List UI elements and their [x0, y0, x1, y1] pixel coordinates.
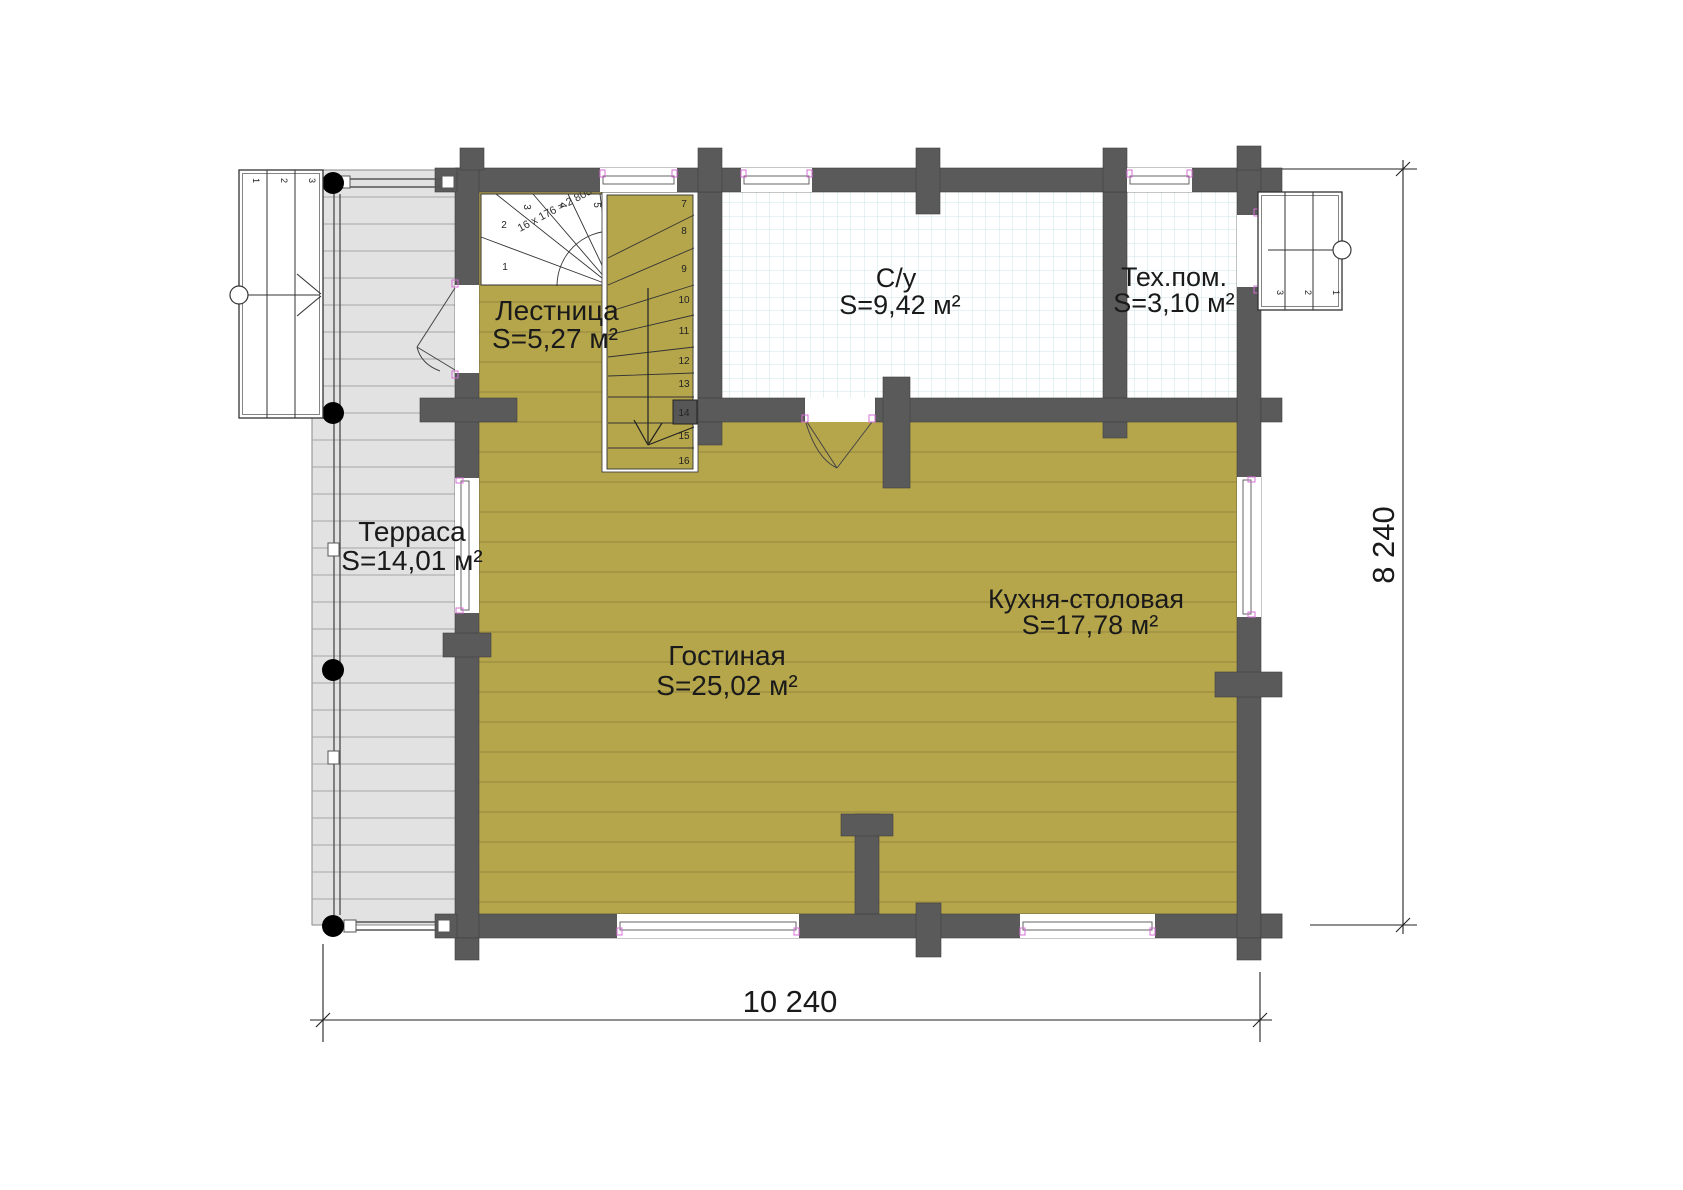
- room-label-stairs-area: S=5,27 м²: [492, 323, 618, 354]
- flight-tread-number: 8: [681, 226, 687, 237]
- winder-tread-number: 5: [591, 202, 602, 208]
- flight-tread-number: 10: [678, 295, 690, 306]
- entry-step-number: 1: [1331, 290, 1341, 295]
- entry-step-number: 1: [251, 178, 261, 183]
- room-label-living-name: Гостиная: [668, 640, 786, 671]
- flight-tread-number: 12: [678, 356, 690, 367]
- winder-tread-number: 4: [557, 202, 568, 208]
- winder-tread-number: 1: [502, 262, 508, 273]
- room-label-bathroom-name: С/у: [876, 263, 917, 293]
- flight-tread-number: 9: [681, 264, 687, 275]
- flight-tread-number: 14: [678, 408, 690, 419]
- terrace-post: [322, 915, 344, 937]
- terrace-post: [322, 659, 344, 681]
- entry-step-number: 3: [1275, 290, 1285, 295]
- terrace-post: [322, 402, 344, 424]
- window-right-kitchen: [1237, 477, 1261, 617]
- floor-plan-page: 16 x 176 = 2 808 1 2 3 4 5 6 7 8 9 10 11…: [0, 0, 1683, 1190]
- window-top-3: [1127, 168, 1192, 192]
- wall-bathroom-left: [698, 192, 722, 398]
- window-bottom-2: [1020, 914, 1155, 938]
- flight-tread-number: 16: [678, 456, 690, 467]
- flight-tread-number: 13: [678, 379, 690, 390]
- room-label-terrace-area: S=14,01 м²: [341, 545, 482, 576]
- window-top-2: [741, 168, 812, 192]
- room-label-living-area: S=25,02 м²: [656, 670, 797, 701]
- entry-stairs-right: 3 2 1: [1258, 192, 1351, 310]
- entry-stairs-left: 1 2 3: [230, 170, 323, 418]
- dimension-height-label: 8 240: [1366, 506, 1401, 584]
- entry-step-number: 2: [1303, 290, 1313, 295]
- floor-plan-drawing: 16 x 176 = 2 808 1 2 3 4 5 6 7 8 9 10 11…: [0, 0, 1683, 1190]
- dimension-width-label: 10 240: [743, 984, 838, 1019]
- flight-tread-number: 11: [679, 326, 690, 337]
- winder-tread-number: 2: [501, 220, 507, 231]
- room-label-tech-area: S=3,10 м²: [1113, 288, 1234, 318]
- entry-step-number: 3: [307, 178, 317, 183]
- flight-tread-number: 7: [681, 199, 687, 210]
- window-top-1: [600, 168, 677, 192]
- wall-interior: [698, 398, 805, 422]
- room-label-terrace-name: Терраса: [358, 516, 466, 547]
- room-label-kitchen-area: S=17,78 м²: [1022, 610, 1158, 640]
- room-label-bathroom-area: S=9,42 м²: [839, 290, 960, 320]
- terrace-post: [322, 172, 344, 194]
- room-label-stairs-name: Лестница: [495, 295, 619, 326]
- window-bottom-1: [617, 914, 799, 938]
- entry-step-number: 2: [279, 178, 289, 183]
- wall-bottom: [457, 914, 1282, 938]
- winder-tread-number: 3: [521, 204, 532, 210]
- wall-interior: [875, 398, 1237, 422]
